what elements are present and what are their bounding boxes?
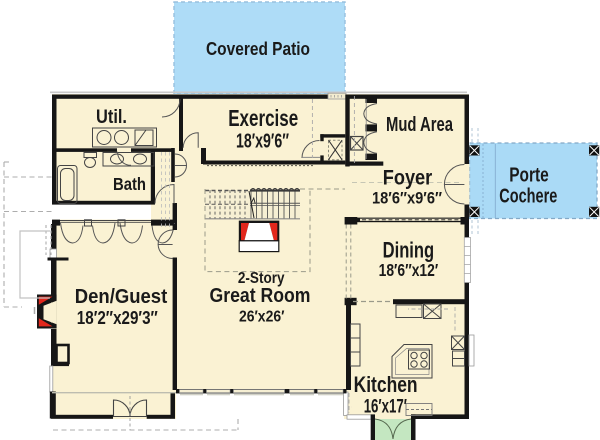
svg-text:Great Room: Great Room [210,284,311,307]
svg-text:Dining: Dining [383,238,435,263]
svg-text:Util.: Util. [96,107,127,128]
svg-text:Bath: Bath [113,174,146,194]
svg-text:16′x17′: 16′x17′ [364,396,407,417]
svg-text:Exercise: Exercise [228,105,298,131]
svg-text:18′6″x9′6″: 18′6″x9′6″ [372,190,442,208]
svg-text:Covered Patio: Covered Patio [206,38,310,59]
svg-text:Foyer: Foyer [383,166,433,190]
svg-text:Cochere: Cochere [499,185,557,207]
svg-text:18′2″x29′3″: 18′2″x29′3″ [77,308,158,328]
svg-text:Kitchen: Kitchen [354,372,418,397]
svg-text:18′6″x12′: 18′6″x12′ [379,260,439,280]
svg-text:18′x9′6″: 18′x9′6″ [236,131,289,153]
svg-text:Den/Guest: Den/Guest [75,286,168,308]
svg-text:Porte: Porte [509,165,549,187]
svg-text:26′x26′: 26′x26′ [239,309,285,326]
svg-text:Mud Area: Mud Area [386,113,453,136]
